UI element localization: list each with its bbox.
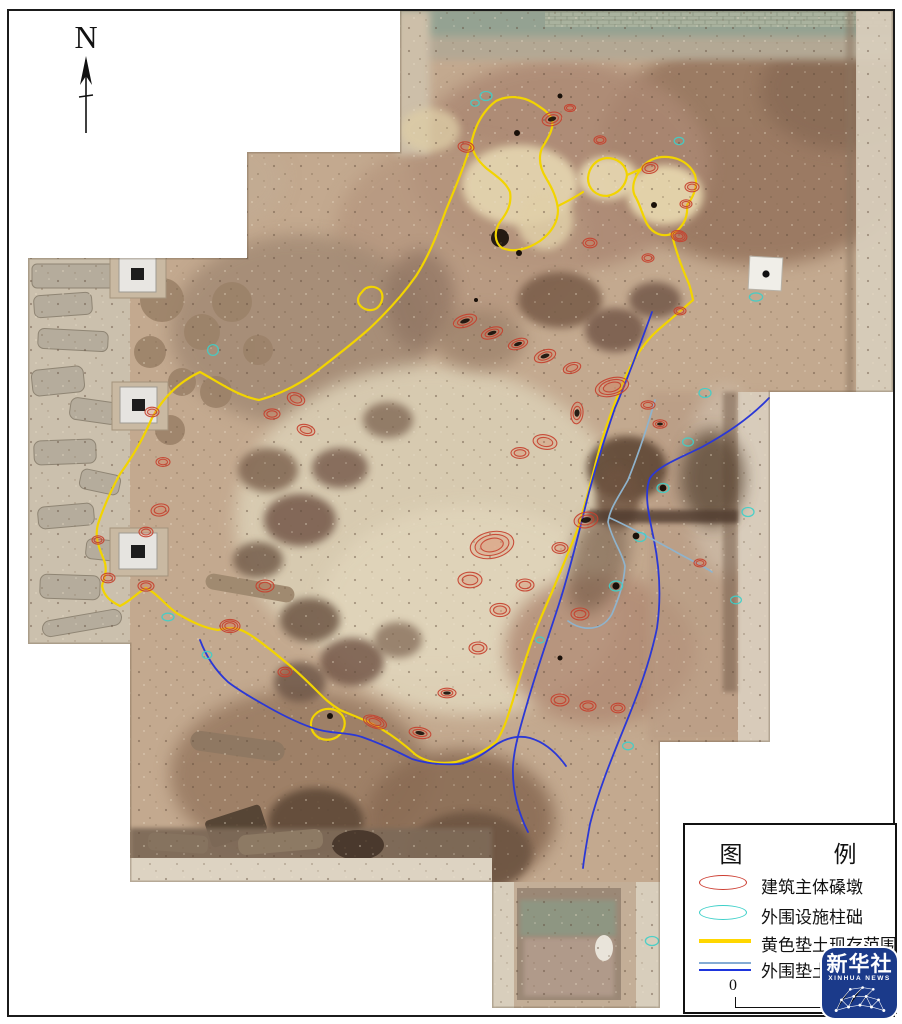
legend-item-pier: 建筑主体磉墩 — [685, 873, 895, 895]
yellow-line-symbol — [699, 939, 751, 943]
legend-item-column: 外围设施柱础 — [685, 903, 895, 925]
legend-item-label: 外围设施柱础 — [761, 903, 863, 928]
north-arrow: N — [74, 19, 97, 133]
cyan-ellipse-symbol — [699, 905, 747, 920]
figure-canvas: N 图 例 建筑主体磉墩 外围设施柱础 黄色垫土现存范围 外围垫土现 0 — [0, 0, 902, 1024]
xinhua-logo-name: 新华社 — [827, 953, 893, 975]
scale-bar-zero: 0 — [729, 977, 737, 995]
xinhua-logo-subtitle: XINHUA NEWS — [828, 975, 890, 983]
legend-title: 图 例 — [685, 835, 895, 869]
legend-item-label: 建筑主体磉墩 — [761, 873, 863, 898]
xinhua-watermark-logo: 新华社 XINHUA NEWS — [822, 948, 897, 1018]
xinhua-network-globe-icon — [828, 984, 892, 1014]
lightblue-line-symbol — [699, 962, 751, 964]
north-label: N — [74, 19, 97, 55]
red-ellipse-symbol — [699, 875, 747, 890]
blue-line-symbol — [699, 969, 751, 971]
